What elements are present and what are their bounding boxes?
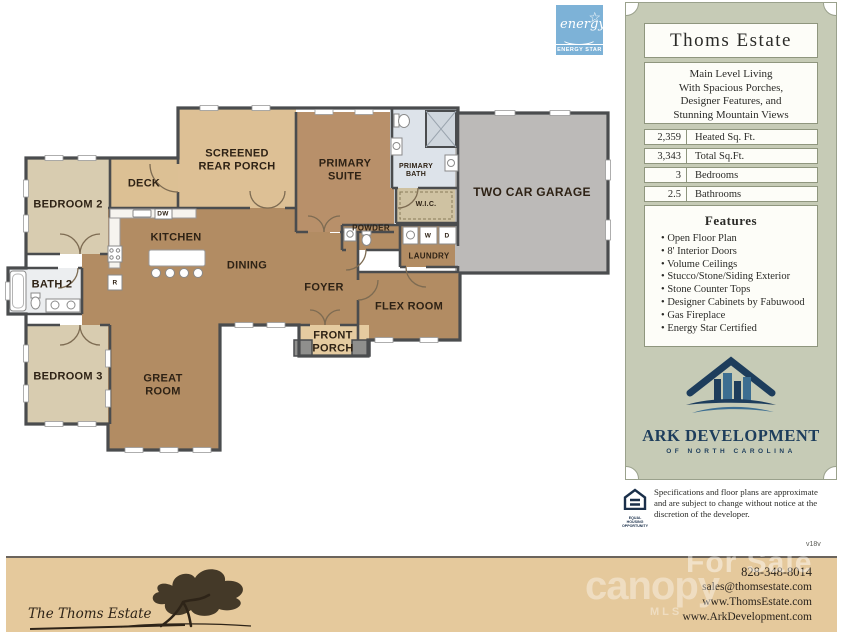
room-label-foyer: FOYER (304, 282, 343, 295)
room-label-bedroom-3: BEDROOM 3 (33, 371, 102, 384)
panel-notch (823, 466, 837, 480)
stat-value: 2.5 (645, 187, 687, 201)
info-panel: Thoms Estate Main Level Living With Spac… (625, 2, 837, 480)
feature-item: Volume Ceilings (661, 259, 813, 272)
star-icon: ☆ (588, 9, 601, 26)
estate-script-name: The Thoms Estate (28, 606, 152, 622)
energy-star-logo: energy ☆ ENERGY STAR (556, 5, 603, 55)
room-label-dining: DINING (227, 260, 267, 273)
stat-row-heated-sqft: 2,359 Heated Sq. Ft. (644, 129, 818, 145)
description-line: With Spacious Porches, (645, 82, 817, 96)
features-title: Features (645, 213, 817, 229)
contact-website: www.ArkDevelopment.com (682, 610, 812, 625)
room-label-front-porch: FRONT PORCH (312, 329, 353, 354)
ark-logo-icon (676, 355, 786, 419)
room-label-wic: W.I.C. (416, 201, 437, 209)
room-label-great-room: GREAT ROOM (143, 372, 182, 397)
stat-row-total-sqft: 3,343 Total Sq.Ft. (644, 148, 818, 164)
feature-item: Gas Fireplace (661, 310, 813, 323)
appliance-label-refrigerator: R (113, 279, 118, 286)
equal-housing-text: EQUAL HOUSING OPPORTUNITY (621, 516, 649, 528)
feature-item: Energy Star Certified (661, 323, 813, 336)
room-label-kitchen: KITCHEN (151, 232, 202, 245)
stat-label: Bedrooms (687, 168, 817, 182)
room-label-powder: POWDER (352, 223, 390, 232)
floor-plan-graphic (0, 0, 630, 560)
room-label-bath-2: BATH 2 (32, 279, 73, 292)
room-label-bedroom-2: BEDROOM 2 (33, 199, 102, 212)
feature-item: Stucco/Stone/Siding Exterior (661, 271, 813, 284)
appliance-label-dishwasher: DW (157, 210, 168, 217)
flyer-page: BEDROOM 2 DECK SCREENED REAR PORCH PRIMA… (0, 0, 843, 632)
room-label-primary-bath: PRIMARY BATH (399, 163, 433, 179)
feature-item: 8' Interior Doors (661, 246, 813, 259)
stat-value: 3,343 (645, 149, 687, 163)
description-line: Stunning Mountain Views (645, 109, 817, 123)
appliance-label-washer: W (425, 232, 431, 239)
ark-subtitle: OF NORTH CAROLINA (626, 448, 836, 455)
stat-label: Bathrooms (687, 187, 817, 201)
description-line: Designer Features, and (645, 95, 817, 109)
room-label-garage: TWO CAR GARAGE (473, 186, 591, 200)
property-title: Thoms Estate (644, 23, 818, 58)
panel-notch (823, 2, 837, 16)
mls-watermark: MLS (650, 606, 682, 618)
energy-star-label: ENERGY STAR (556, 44, 603, 53)
appliance-label-dryer: D (445, 232, 450, 239)
stat-row-bathrooms: 2.5 Bathrooms (644, 186, 818, 202)
ark-development-logo: ARK DEVELOPMENT OF NORTH CAROLINA (626, 355, 836, 455)
feature-item: Open Floor Plan (661, 233, 813, 246)
feature-item: Stone Counter Tops (661, 284, 813, 297)
ark-name: ARK DEVELOPMENT (626, 426, 836, 446)
room-label-screened-porch: SCREENED REAR PORCH (199, 147, 276, 172)
features-card: Features Open Floor Plan 8' Interior Doo… (644, 205, 818, 347)
description-line: Main Level Living (645, 68, 817, 82)
room-label-deck: DECK (128, 178, 160, 191)
property-description: Main Level Living With Spacious Porches,… (644, 62, 818, 124)
equal-housing-icon (623, 488, 647, 510)
panel-notch (625, 2, 639, 16)
disclaimer-text: Specifications and floor plans are appro… (654, 487, 822, 520)
features-list: Open Floor Plan 8' Interior Doors Volume… (645, 233, 817, 335)
feature-item: Designer Cabinets by Fabuwood (661, 297, 813, 310)
room-label-flex-room: FLEX ROOM (375, 301, 443, 314)
stat-value: 3 (645, 168, 687, 182)
stat-label: Total Sq.Ft. (687, 149, 817, 163)
panel-notch (625, 466, 639, 480)
room-label-laundry: LAUNDRY (409, 251, 450, 260)
stat-row-bedrooms: 3 Bedrooms (644, 167, 818, 183)
canopy-mls-watermark: canopy (585, 564, 719, 609)
equal-housing-logo: EQUAL HOUSING OPPORTUNITY (621, 488, 649, 528)
room-label-primary-suite: PRIMARY SUITE (319, 157, 371, 182)
stat-label: Heated Sq. Ft. (687, 130, 817, 144)
energy-star-arc (561, 31, 597, 45)
stat-value: 2,359 (645, 130, 687, 144)
